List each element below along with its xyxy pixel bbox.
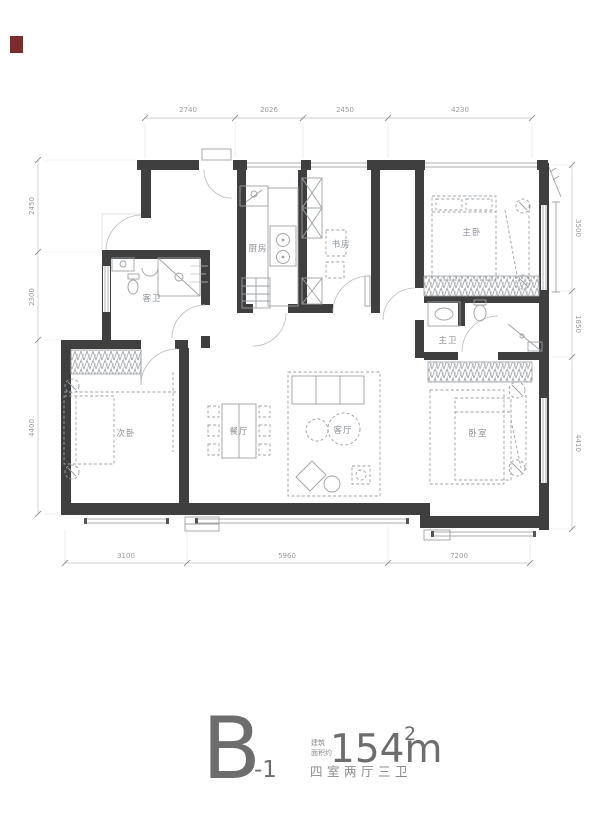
area-prefix-line2: 面积约 — [311, 748, 332, 757]
window-guest-bath — [103, 266, 110, 312]
study-door-arc — [333, 276, 369, 312]
window-bottom-living — [195, 518, 409, 524]
bedroom-right-wardrobe — [428, 362, 532, 382]
dim-bottom-0: 3100 — [117, 552, 135, 560]
dim-left-0: 2450 — [28, 197, 36, 215]
window-top-master — [425, 160, 537, 170]
dim-bottom-1: 5960 — [278, 552, 296, 560]
room-label-kitchen: 厨房 — [248, 243, 267, 254]
room-label-bedroom-left: 次卧 — [116, 428, 135, 439]
window-right-master — [541, 205, 547, 290]
bedroom-left-wardrobe — [71, 350, 141, 374]
bedroom-left-door-arc — [141, 349, 177, 385]
bedroom-left-furniture — [64, 372, 176, 479]
window-bottom-left-bedroom — [84, 518, 169, 524]
room-label-study: 书房 — [331, 239, 350, 250]
area-prefix-line1: 建筑 — [311, 738, 325, 747]
master-suite-door-arc — [383, 288, 415, 320]
walls-layer — [61, 149, 561, 537]
dim-left-2: 4400 — [28, 419, 36, 437]
red-corner-marker — [10, 36, 23, 53]
room-label-dining: 餐厅 — [229, 427, 248, 437]
kitchen-door-arc — [253, 313, 286, 346]
entry-door — [202, 149, 232, 198]
room-label-guest-bath: 客卫 — [142, 293, 161, 304]
unit-subtitle: 四室两厅三卫 — [310, 764, 412, 779]
room-label-master-bedroom: 主卧 — [462, 227, 481, 238]
porch-steps — [185, 517, 450, 540]
foyer-door-arc — [106, 215, 141, 250]
dimension-bottom: 3100 5960 7200 — [62, 552, 533, 566]
area-superscript: 2 — [404, 723, 416, 745]
dim-top-2: 2450 — [336, 106, 354, 114]
master-wardrobe — [424, 276, 539, 296]
room-label-living: 客厅 — [333, 425, 352, 436]
dim-right-2: 4410 — [574, 434, 582, 452]
master-bedroom-furniture — [432, 196, 530, 289]
title-block: B -1 建筑 面积约 154m 2 四室两厅三卫 — [202, 699, 442, 799]
dim-right-0: 3500 — [574, 219, 582, 237]
guest-bath-door-arc — [172, 305, 205, 338]
dim-top-0: 2740 — [179, 106, 197, 114]
window-top-kitchen — [247, 160, 301, 170]
dim-top-3: 4230 — [451, 106, 469, 114]
dimension-left: 2450 2300 4400 — [28, 157, 41, 517]
room-label-master-bath: 主卫 — [438, 335, 457, 346]
room-label-bedroom-right: 卧室 — [468, 428, 487, 439]
window-top-study — [311, 160, 367, 170]
dimension-top: 2740 2026 2450 4230 — [142, 106, 535, 121]
dimension-right: 3500 1850 4410 — [569, 162, 582, 532]
window-bottom-right-bedroom — [431, 531, 536, 537]
window-right-bedroom — [541, 398, 547, 483]
study-door-leaf — [365, 276, 370, 306]
dim-top-1: 2026 — [260, 106, 278, 114]
unit-letter: B — [202, 699, 261, 799]
floor-plan-canvas: 2740 2026 2450 4230 3100 5960 7200 2450 … — [0, 0, 600, 836]
dim-bottom-2: 7200 — [450, 552, 468, 560]
dim-left-1: 2300 — [28, 288, 36, 306]
bay-window-line — [552, 202, 560, 292]
dim-right-1: 1850 — [574, 315, 582, 333]
guest-bath-fixtures — [112, 258, 200, 296]
bay-corner — [548, 165, 561, 197]
unit-suffix: -1 — [254, 757, 277, 783]
